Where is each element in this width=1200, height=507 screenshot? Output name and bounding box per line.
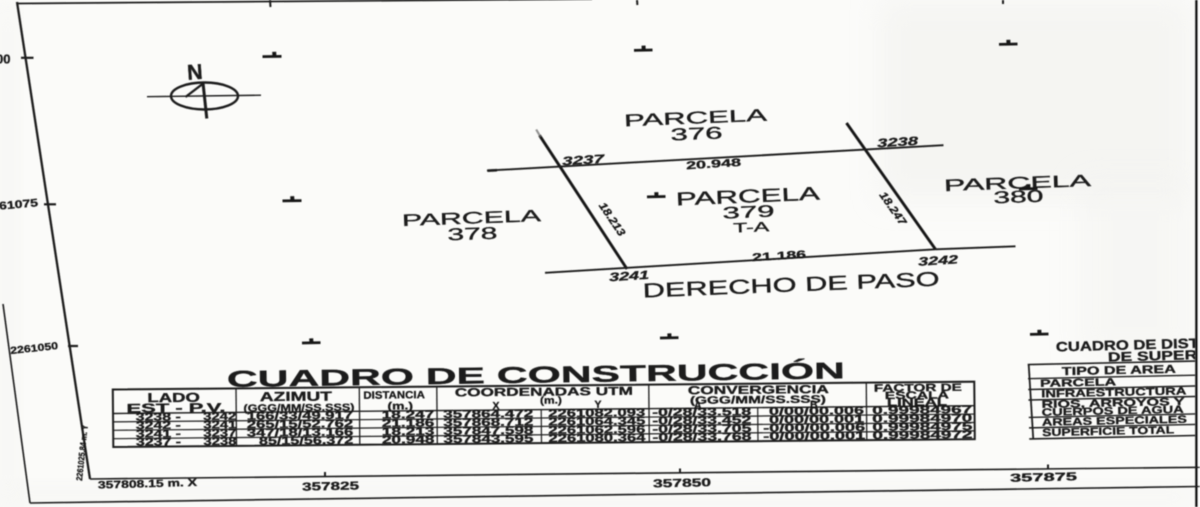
svg-text:T-A: T-A bbox=[733, 219, 770, 235]
svg-text:357850: 357850 bbox=[653, 477, 711, 490]
svg-text:357875: 357875 bbox=[1010, 471, 1078, 484]
svg-text:2261080.364: 2261080.364 bbox=[548, 432, 646, 445]
svg-text:378: 378 bbox=[447, 224, 498, 245]
svg-text:TIPO DE AREA: TIPO DE AREA bbox=[1062, 364, 1176, 378]
svg-text:-0/00/00.001: -0/00/00.001 bbox=[763, 430, 865, 443]
svg-text:N: N bbox=[186, 60, 203, 85]
svg-text:380: 380 bbox=[993, 187, 1044, 208]
svg-text:3238: 3238 bbox=[203, 436, 236, 448]
svg-text:85/15/56.372: 85/15/56.372 bbox=[259, 435, 353, 448]
svg-text:0.99984972: 0.99984972 bbox=[872, 429, 972, 442]
svg-text:3242: 3242 bbox=[918, 252, 959, 268]
svg-text:357843.595: 357843.595 bbox=[443, 433, 533, 446]
svg-text:00: 00 bbox=[0, 52, 10, 67]
svg-text:(m.): (m.) bbox=[540, 395, 562, 406]
svg-text:376: 376 bbox=[670, 123, 723, 144]
svg-text:3237: 3237 bbox=[562, 152, 607, 169]
svg-text:3237 -: 3237 - bbox=[136, 436, 182, 448]
svg-text:-0/28/33.768: -0/28/33.768 bbox=[652, 431, 751, 444]
svg-text:357825: 357825 bbox=[302, 480, 360, 493]
svg-text:3238: 3238 bbox=[877, 134, 919, 151]
svg-text:20.948: 20.948 bbox=[382, 434, 435, 446]
